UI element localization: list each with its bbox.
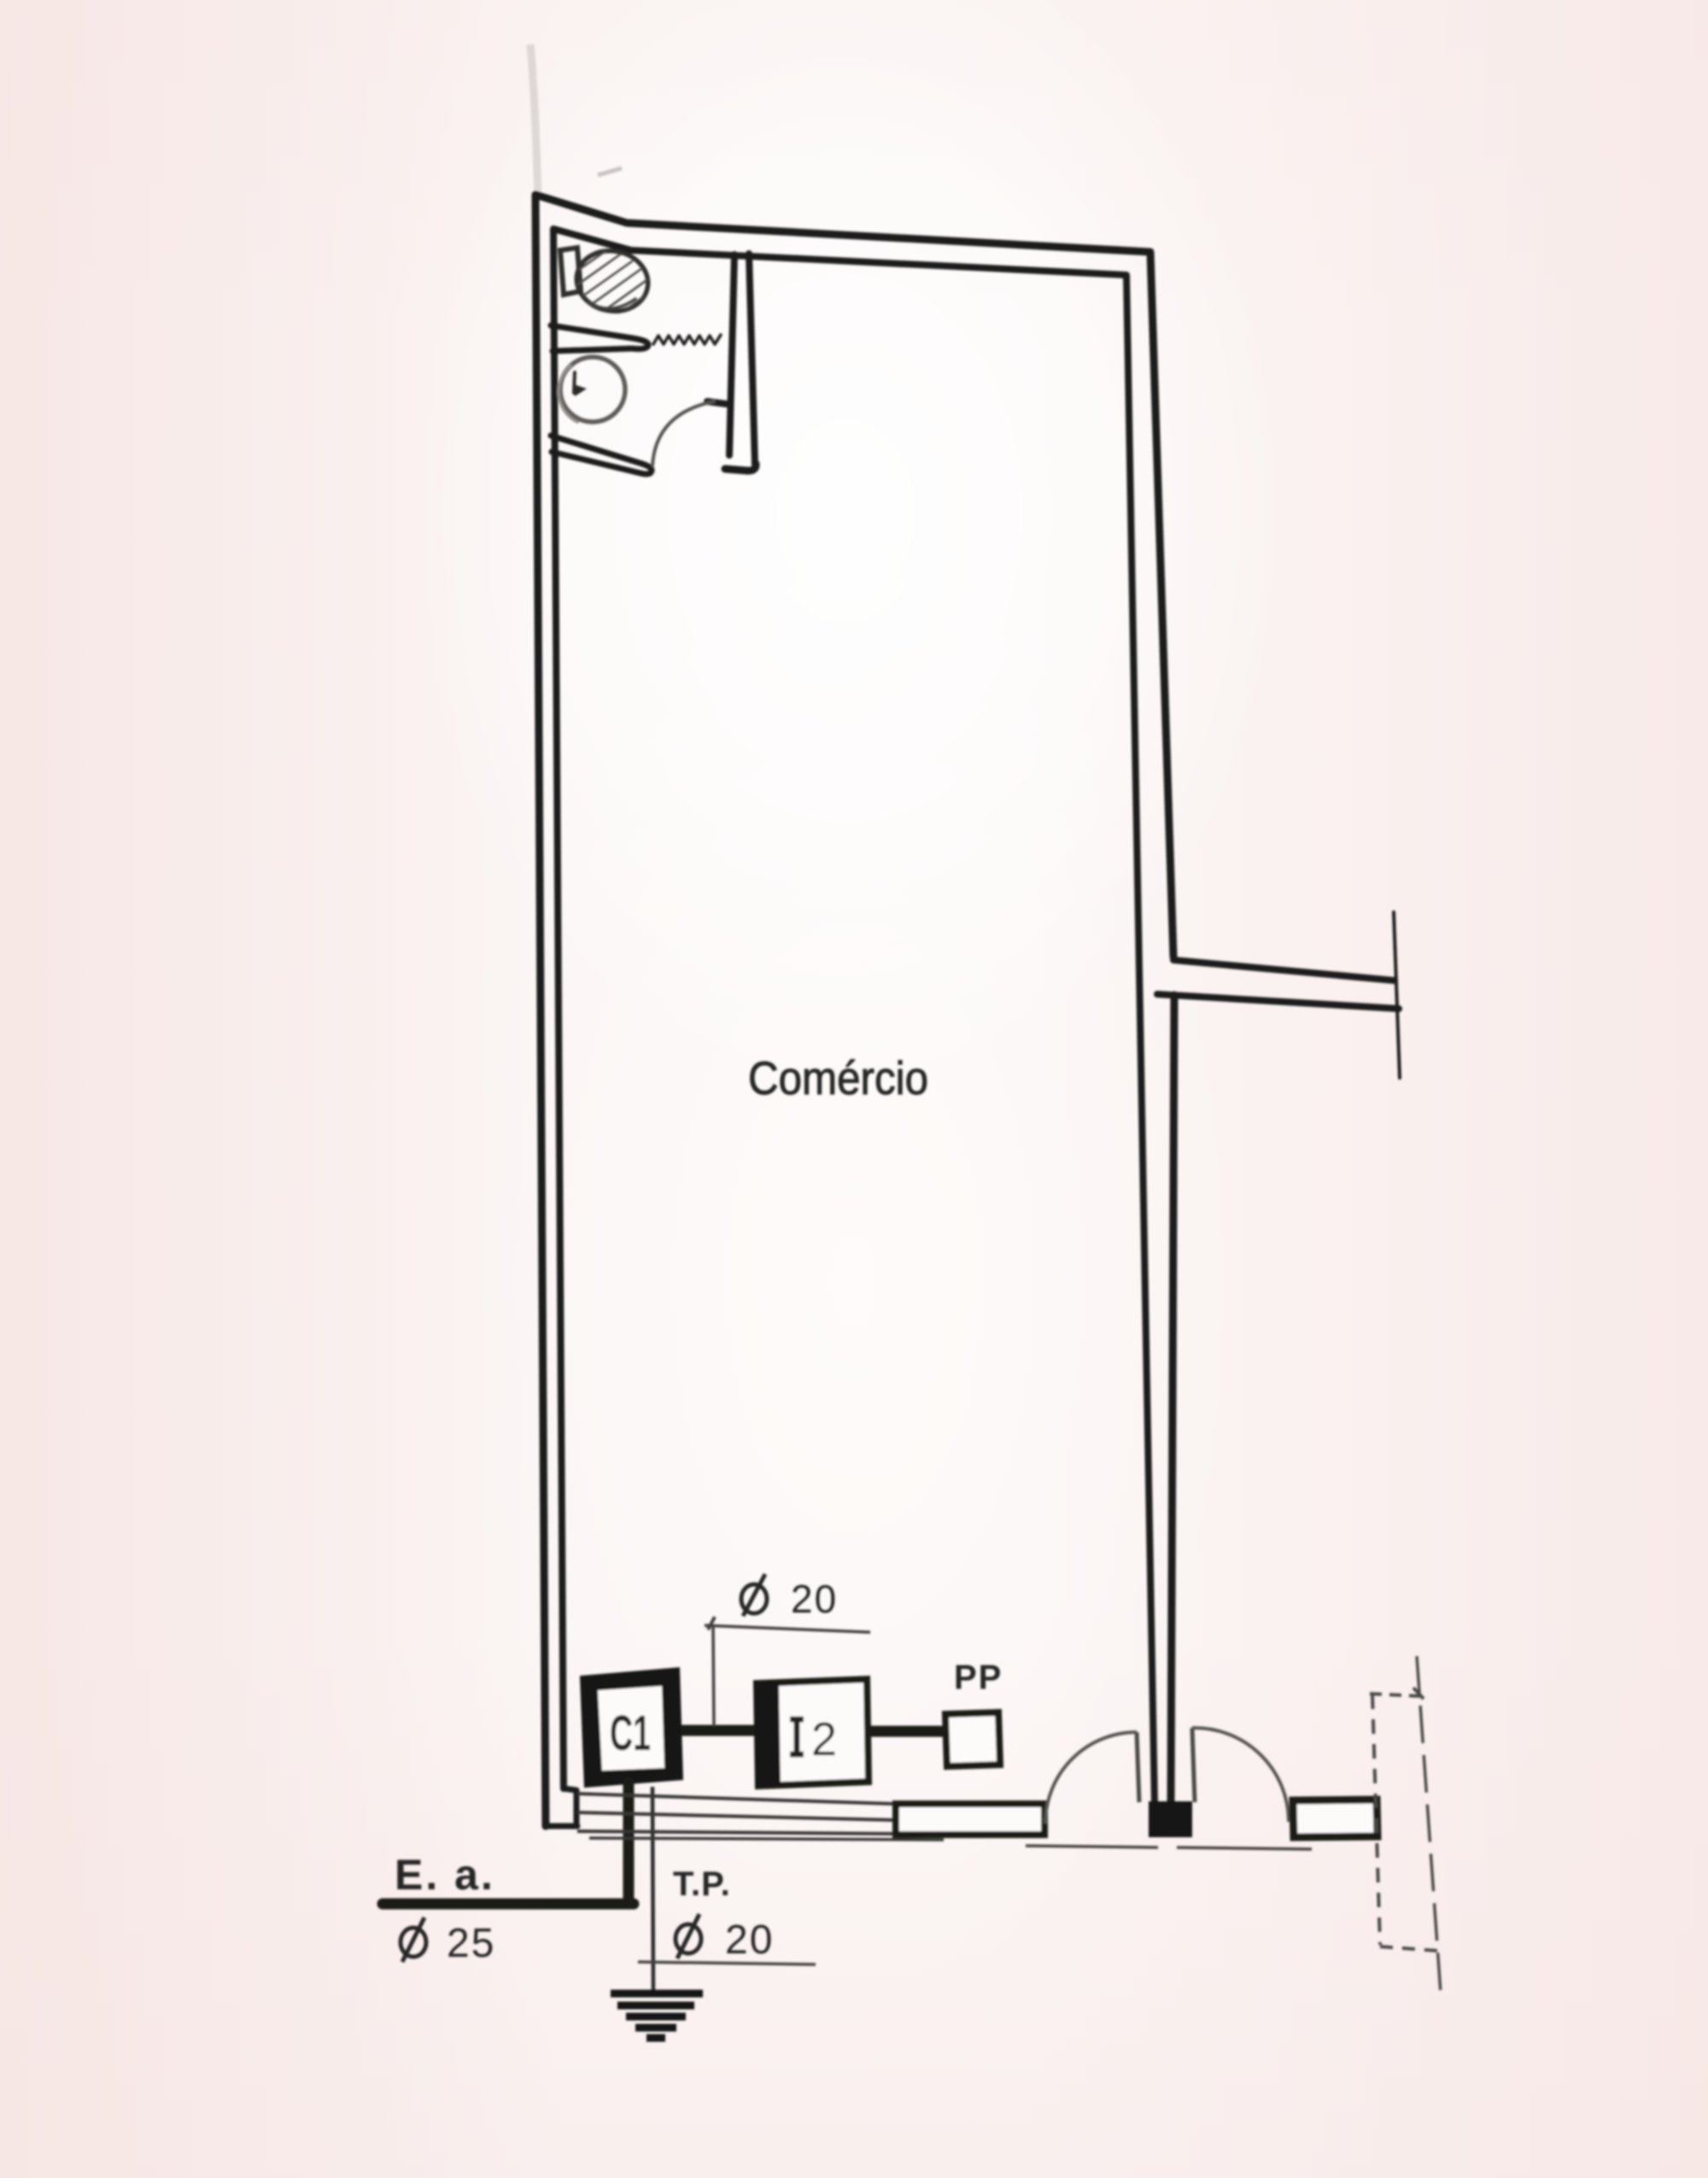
svg-text:C1: C1 xyxy=(610,1706,651,1761)
svg-text:20: 20 xyxy=(725,1917,774,1963)
svg-text:E. a.: E. a. xyxy=(395,1851,495,1899)
svg-text:20: 20 xyxy=(791,1577,838,1621)
svg-text:2: 2 xyxy=(811,1713,837,1765)
svg-text:25: 25 xyxy=(447,1921,495,1966)
svg-text:Comércio: Comércio xyxy=(748,1051,928,1104)
svg-text:PP: PP xyxy=(954,1659,1003,1696)
svg-text:T.P.: T.P. xyxy=(673,1865,731,1903)
